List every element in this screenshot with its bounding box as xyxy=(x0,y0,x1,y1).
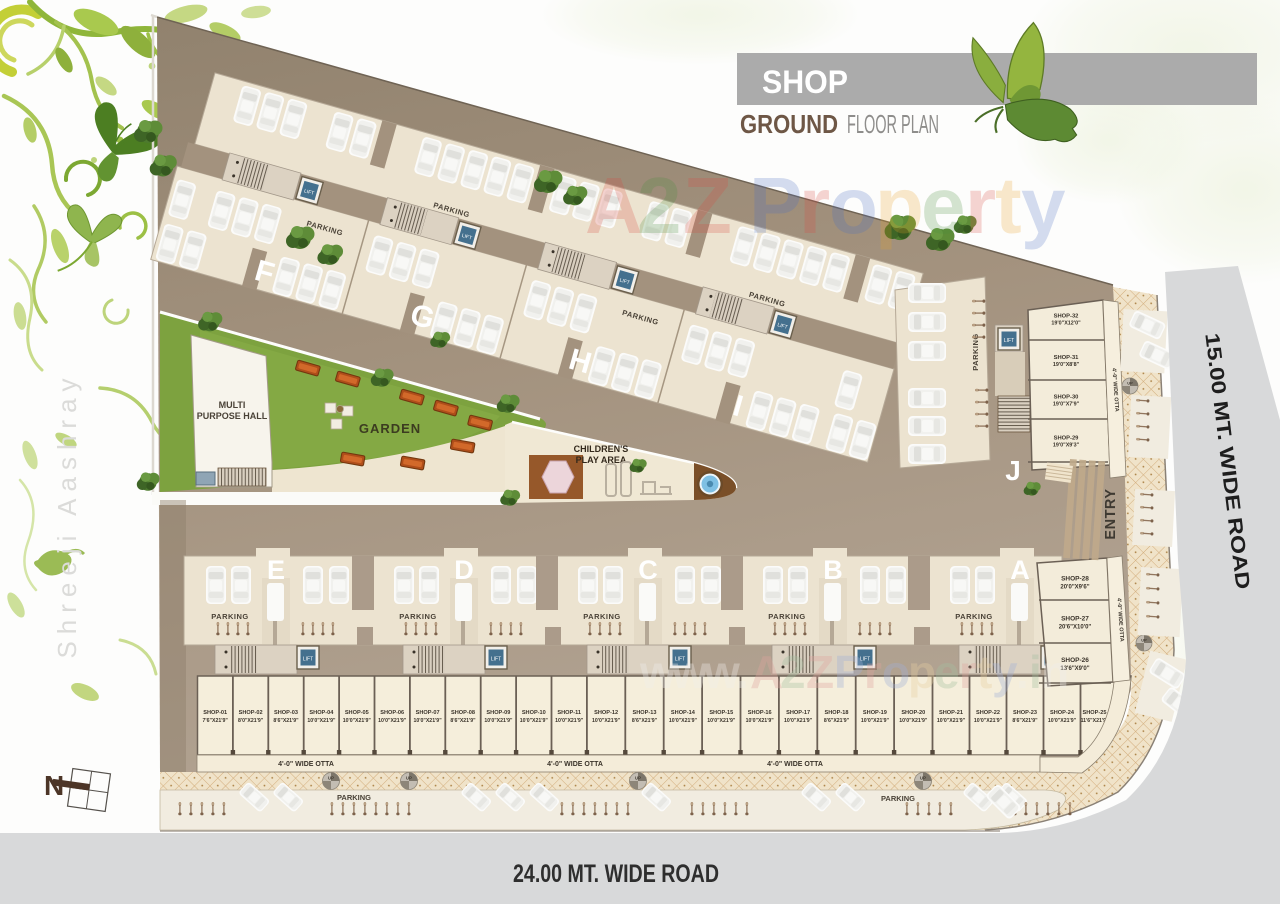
svg-text:r: r xyxy=(864,646,882,698)
svg-text:ENTRY: ENTRY xyxy=(1103,488,1119,539)
svg-text:19'0"X7'9": 19'0"X7'9" xyxy=(1053,402,1080,408)
svg-text:PARKING: PARKING xyxy=(337,793,371,802)
svg-text:SHOP-18: SHOP-18 xyxy=(825,710,849,716)
svg-text:J: J xyxy=(1005,455,1021,486)
svg-text:Shreeji Aashray: Shreeji Aashray xyxy=(52,371,82,658)
svg-text:GROUND: GROUND xyxy=(740,109,838,139)
svg-text:20'6"X10'0": 20'6"X10'0" xyxy=(1059,625,1092,631)
svg-text:SHOP-11: SHOP-11 xyxy=(557,710,581,716)
svg-text:y: y xyxy=(1021,161,1066,250)
svg-text:SHOP-30: SHOP-30 xyxy=(1054,395,1079,401)
svg-text:SHOP-10: SHOP-10 xyxy=(522,710,546,716)
svg-text:PARKING: PARKING xyxy=(211,612,249,621)
svg-text:10'0"X21'9": 10'0"X21'9" xyxy=(974,718,1003,724)
svg-text:LIFT: LIFT xyxy=(303,657,313,663)
svg-text:10'0"X21'9": 10'0"X21'9" xyxy=(861,718,890,724)
svg-text:SHOP-07: SHOP-07 xyxy=(416,710,440,716)
svg-text:4'-0" WIDE OTTA: 4'-0" WIDE OTTA xyxy=(767,761,823,768)
svg-text:t: t xyxy=(977,646,992,698)
svg-text:8'6"X21'9": 8'6"X21'9" xyxy=(450,718,476,724)
svg-text:8'0"X21'9": 8'0"X21'9" xyxy=(238,718,264,724)
svg-text:8'6"X21'9": 8'6"X21'9" xyxy=(824,718,850,724)
svg-text:PURPOSE HALL: PURPOSE HALL xyxy=(197,411,268,421)
svg-text:10'0"X21'9": 10'0"X21'9" xyxy=(669,718,698,724)
svg-text:SHOP-05: SHOP-05 xyxy=(345,710,369,716)
svg-text:w: w xyxy=(703,646,740,698)
svg-text:10'0"X21'9": 10'0"X21'9" xyxy=(307,718,336,724)
svg-text:SHOP-29: SHOP-29 xyxy=(1054,436,1080,442)
svg-text:10'0"X21'9": 10'0"X21'9" xyxy=(414,718,443,724)
svg-text:PARKING: PARKING xyxy=(583,612,621,621)
svg-text:Z: Z xyxy=(683,161,732,250)
svg-text:8'6"X21'9": 8'6"X21'9" xyxy=(632,718,658,724)
svg-text:.: . xyxy=(1016,646,1029,698)
svg-text:PARKING: PARKING xyxy=(768,612,806,621)
svg-text:SHOP-09: SHOP-09 xyxy=(486,710,510,716)
svg-text:w: w xyxy=(639,646,676,698)
svg-text:P: P xyxy=(749,161,802,250)
svg-text:10'0"X21'9": 10'0"X21'9" xyxy=(899,718,928,724)
svg-text:PARKING: PARKING xyxy=(971,333,980,371)
svg-text:10'0"X21'9": 10'0"X21'9" xyxy=(555,718,584,724)
svg-text:19'0"X12'0": 19'0"X12'0" xyxy=(1051,321,1081,327)
svg-text:SHOP-12: SHOP-12 xyxy=(594,710,618,716)
svg-text:MULTI: MULTI xyxy=(219,400,246,410)
svg-text:4'-0" WIDE OTTA: 4'-0" WIDE OTTA xyxy=(547,761,603,768)
svg-text:10'0"X21'9": 10'0"X21'9" xyxy=(746,718,775,724)
svg-text:SHOP-22: SHOP-22 xyxy=(976,710,1000,716)
svg-text:SHOP-15: SHOP-15 xyxy=(709,710,733,716)
svg-text:SHOP: SHOP xyxy=(762,64,848,100)
svg-text:SHOP-08: SHOP-08 xyxy=(451,710,475,716)
svg-text:2: 2 xyxy=(637,161,682,250)
svg-text:A: A xyxy=(750,646,783,698)
svg-text:y: y xyxy=(992,646,1018,698)
svg-text:A: A xyxy=(1010,555,1030,585)
svg-text:B: B xyxy=(823,555,843,585)
svg-text:SHOP-04: SHOP-04 xyxy=(309,710,334,716)
svg-text:SHOP-14: SHOP-14 xyxy=(671,710,696,716)
svg-text:CHILDREN'S: CHILDREN'S xyxy=(574,444,629,454)
svg-text:8'6"X21'9": 8'6"X21'9" xyxy=(273,718,299,724)
svg-text:2: 2 xyxy=(780,646,806,698)
svg-text:24.00 MT. WIDE ROAD: 24.00 MT. WIDE ROAD xyxy=(513,860,719,888)
svg-text:E: E xyxy=(267,555,285,585)
svg-text:GARDEN: GARDEN xyxy=(359,421,421,436)
svg-text:10'0"X21'9": 10'0"X21'9" xyxy=(484,718,513,724)
svg-text:r: r xyxy=(965,161,996,250)
svg-text:10'0"X21'9": 10'0"X21'9" xyxy=(378,718,407,724)
svg-text:P: P xyxy=(834,646,865,698)
svg-text:SHOP-32: SHOP-32 xyxy=(1054,314,1079,320)
svg-text:SHOP-13: SHOP-13 xyxy=(633,710,657,716)
svg-text:o: o xyxy=(829,161,878,250)
svg-text:SHOP-25: SHOP-25 xyxy=(1083,710,1107,716)
svg-text:SHOP-16: SHOP-16 xyxy=(748,710,772,716)
svg-text:4'-0" WIDE OTTA: 4'-0" WIDE OTTA xyxy=(278,761,334,768)
svg-text:p: p xyxy=(875,161,924,250)
svg-text:PARKING: PARKING xyxy=(881,794,915,803)
svg-text:e: e xyxy=(921,161,966,250)
svg-text:FLOOR PLAN: FLOOR PLAN xyxy=(847,109,939,139)
svg-text:C: C xyxy=(638,555,658,585)
svg-text:10'0"X21'9": 10'0"X21'9" xyxy=(520,718,549,724)
svg-text:r: r xyxy=(959,646,977,698)
svg-text:SHOP-03: SHOP-03 xyxy=(274,710,298,716)
svg-text:Z: Z xyxy=(806,646,834,698)
svg-text:10'0"X21'9": 10'0"X21'9" xyxy=(707,718,736,724)
svg-text:19'0"X9'3": 19'0"X9'3" xyxy=(1053,443,1080,449)
svg-text:SHOP-17: SHOP-17 xyxy=(786,710,810,716)
svg-text:SHOP-02: SHOP-02 xyxy=(239,710,263,716)
svg-text:SHOP-19: SHOP-19 xyxy=(863,710,887,716)
svg-text:SHOP-31: SHOP-31 xyxy=(1054,355,1080,361)
svg-text:PARKING: PARKING xyxy=(955,612,993,621)
svg-text:w: w xyxy=(671,646,708,698)
svg-text:8'6"X21'9": 8'6"X21'9" xyxy=(1012,718,1038,724)
svg-text:SHOP-28: SHOP-28 xyxy=(1061,576,1089,583)
svg-text:PLAY AREA: PLAY AREA xyxy=(576,455,627,465)
svg-text:SHOP-21: SHOP-21 xyxy=(939,710,963,716)
svg-text:SHOP-27: SHOP-27 xyxy=(1061,616,1089,623)
svg-text:.: . xyxy=(736,646,749,698)
svg-text:A: A xyxy=(585,161,643,250)
svg-text:p: p xyxy=(908,646,936,698)
svg-text:SHOP-20: SHOP-20 xyxy=(901,710,925,716)
svg-text:SHOP-24: SHOP-24 xyxy=(1050,710,1075,716)
svg-text:LIFT: LIFT xyxy=(1004,338,1014,344)
svg-text:10'0"X21'9": 10'0"X21'9" xyxy=(343,718,372,724)
svg-text:10'0"X21'9": 10'0"X21'9" xyxy=(1048,718,1077,724)
svg-text:20'0"X9'6": 20'0"X9'6" xyxy=(1060,585,1089,591)
svg-text:10'0"X21'9": 10'0"X21'9" xyxy=(784,718,813,724)
svg-text:SHOP-23: SHOP-23 xyxy=(1013,710,1037,716)
svg-text:LIFT: LIFT xyxy=(491,657,501,663)
svg-text:SHOP-06: SHOP-06 xyxy=(380,710,404,716)
svg-text:r: r xyxy=(799,161,830,250)
svg-text:19'0"X8'8": 19'0"X8'8" xyxy=(1053,362,1080,368)
svg-text:e: e xyxy=(934,646,960,698)
svg-text:D: D xyxy=(454,555,474,585)
svg-text:o: o xyxy=(882,646,910,698)
svg-text:PARKING: PARKING xyxy=(399,612,437,621)
svg-text:10'0"X21'9": 10'0"X21'9" xyxy=(937,718,966,724)
svg-text:i: i xyxy=(1029,646,1042,698)
svg-text:t: t xyxy=(995,161,1022,250)
svg-text:SHOP-01: SHOP-01 xyxy=(203,710,227,716)
svg-text:7'6"X21'9": 7'6"X21'9" xyxy=(203,718,229,724)
svg-text:10'0"X21'9": 10'0"X21'9" xyxy=(592,718,621,724)
svg-text:n: n xyxy=(1041,646,1069,698)
